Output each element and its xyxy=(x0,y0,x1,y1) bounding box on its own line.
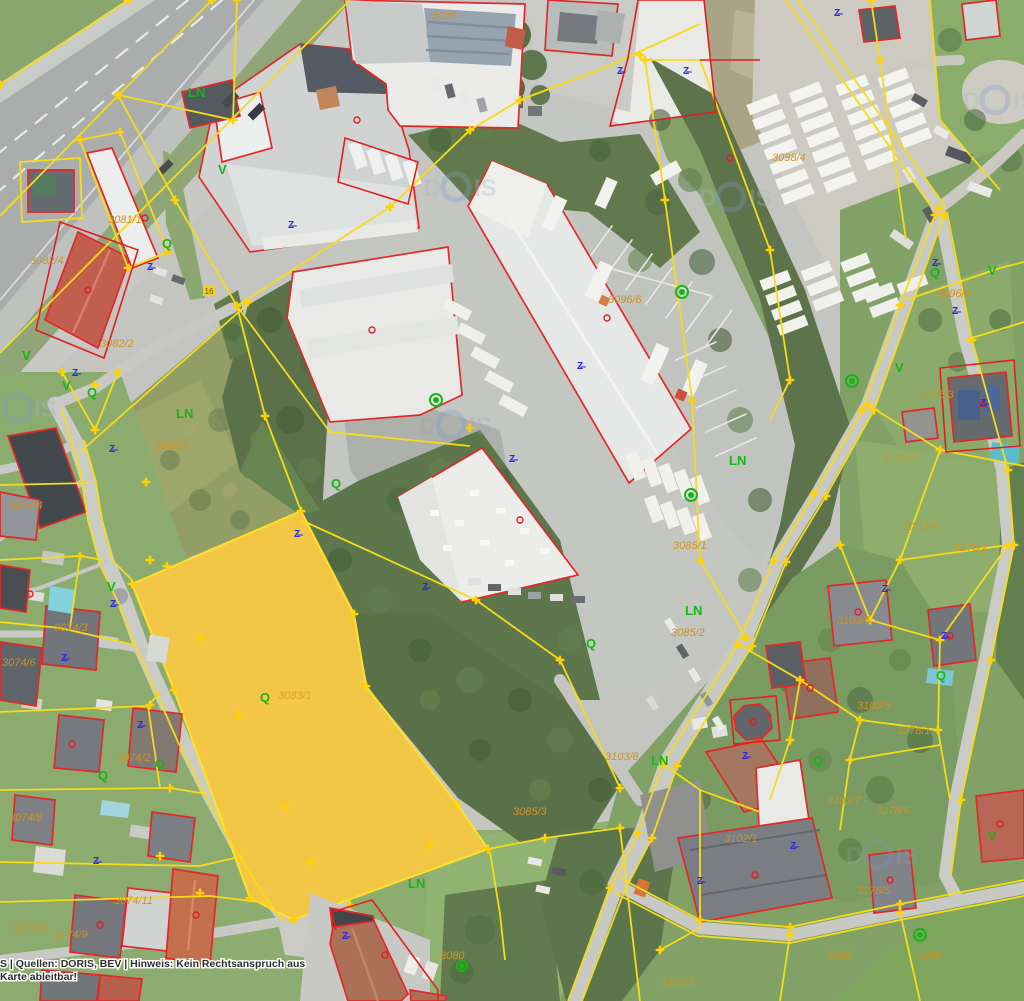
svg-text:D: D xyxy=(424,175,441,202)
svg-text:3280: 3280 xyxy=(827,950,852,962)
svg-text:3278/2: 3278/2 xyxy=(954,542,988,554)
svg-text:3103/8: 3103/8 xyxy=(605,751,640,763)
svg-text:3085/2: 3085/2 xyxy=(671,627,705,639)
svg-text:3098/4: 3098/4 xyxy=(772,152,806,164)
svg-text:IS: IS xyxy=(474,175,497,202)
svg-text:3082/2: 3082/2 xyxy=(100,338,134,350)
svg-text:3074/6: 3074/6 xyxy=(2,657,37,669)
svg-text:3074/9: 3074/9 xyxy=(54,929,88,941)
svg-text:LN: LN xyxy=(188,85,205,100)
svg-text:Q: Q xyxy=(813,753,823,768)
svg-text:3103/6: 3103/6 xyxy=(857,700,892,712)
svg-text:3096/6: 3096/6 xyxy=(608,294,643,306)
svg-text:D: D xyxy=(699,185,716,212)
svg-text:3081/1: 3081/1 xyxy=(108,214,142,226)
svg-text:3056: 3056 xyxy=(432,10,457,22)
svg-text:V: V xyxy=(218,162,227,177)
svg-text:3260: 3260 xyxy=(917,950,942,962)
svg-text:Q: Q xyxy=(331,476,341,491)
svg-text:Q: Q xyxy=(98,768,108,783)
svg-text:V: V xyxy=(988,828,997,843)
svg-text:3103/5: 3103/5 xyxy=(837,615,872,627)
svg-text:Q: Q xyxy=(930,265,940,280)
svg-text:Q: Q xyxy=(162,236,172,251)
svg-text:3102/1: 3102/1 xyxy=(724,833,758,845)
svg-text:3083/1: 3083/1 xyxy=(278,690,312,702)
svg-text:IS: IS xyxy=(749,185,772,212)
svg-text:Karte ableitbar!: Karte ableitbar! xyxy=(0,971,77,983)
svg-text:3074/8: 3074/8 xyxy=(9,812,44,824)
svg-text:D: D xyxy=(963,88,980,115)
svg-text:LN: LN xyxy=(685,603,702,618)
svg-text:3082/4: 3082/4 xyxy=(30,255,64,267)
svg-text:LN: LN xyxy=(176,406,193,421)
svg-text:V: V xyxy=(107,579,116,594)
svg-text:3103/2: 3103/2 xyxy=(882,453,916,465)
svg-text:3074/2: 3074/2 xyxy=(117,752,151,764)
svg-text:3278/1: 3278/1 xyxy=(897,725,931,737)
svg-text:3074/4: 3074/4 xyxy=(9,500,43,512)
svg-text:3096/3: 3096/3 xyxy=(920,389,955,401)
svg-text:LN: LN xyxy=(729,453,746,468)
svg-text:3074/3: 3074/3 xyxy=(54,622,89,634)
svg-text:3085/1: 3085/1 xyxy=(673,540,707,552)
svg-text:3071/8: 3071/8 xyxy=(12,922,47,934)
svg-text:IS: IS xyxy=(896,843,919,870)
svg-text:Q: Q xyxy=(155,756,165,771)
svg-text:D: D xyxy=(419,413,436,440)
svg-text:V: V xyxy=(62,378,71,393)
svg-text:3082/3: 3082/3 xyxy=(155,440,190,452)
svg-text:3102/3: 3102/3 xyxy=(661,977,696,989)
svg-text:3074/11: 3074/11 xyxy=(114,895,153,907)
svg-text:V: V xyxy=(22,348,31,363)
svg-text:V: V xyxy=(895,360,904,375)
svg-text:3103/7: 3103/7 xyxy=(827,795,862,807)
svg-text:D: D xyxy=(846,843,863,870)
svg-text:LN: LN xyxy=(408,876,425,891)
svg-text:IS: IS xyxy=(469,413,492,440)
svg-text:3096/4: 3096/4 xyxy=(937,288,971,300)
svg-text:IS: IS xyxy=(1013,88,1024,115)
svg-text:Q: Q xyxy=(936,668,946,683)
svg-text:LN: LN xyxy=(651,753,668,768)
svg-text:3085/3: 3085/3 xyxy=(513,806,548,818)
svg-text:3278/5: 3278/5 xyxy=(857,885,892,897)
svg-text:Q: Q xyxy=(586,636,596,651)
svg-text:3103/4: 3103/4 xyxy=(904,521,938,533)
svg-text:Q: Q xyxy=(87,385,97,400)
svg-text:3080: 3080 xyxy=(440,950,465,962)
svg-text:V: V xyxy=(988,263,997,278)
svg-text:IS: IS xyxy=(34,396,57,423)
svg-text:16: 16 xyxy=(205,287,214,296)
svg-text:Q: Q xyxy=(260,690,270,705)
svg-text:S | Quellen: DORIS, BEV | Hinw: S | Quellen: DORIS, BEV | Hinweis: Kein … xyxy=(0,958,305,970)
svg-text:3278/6: 3278/6 xyxy=(876,805,911,817)
